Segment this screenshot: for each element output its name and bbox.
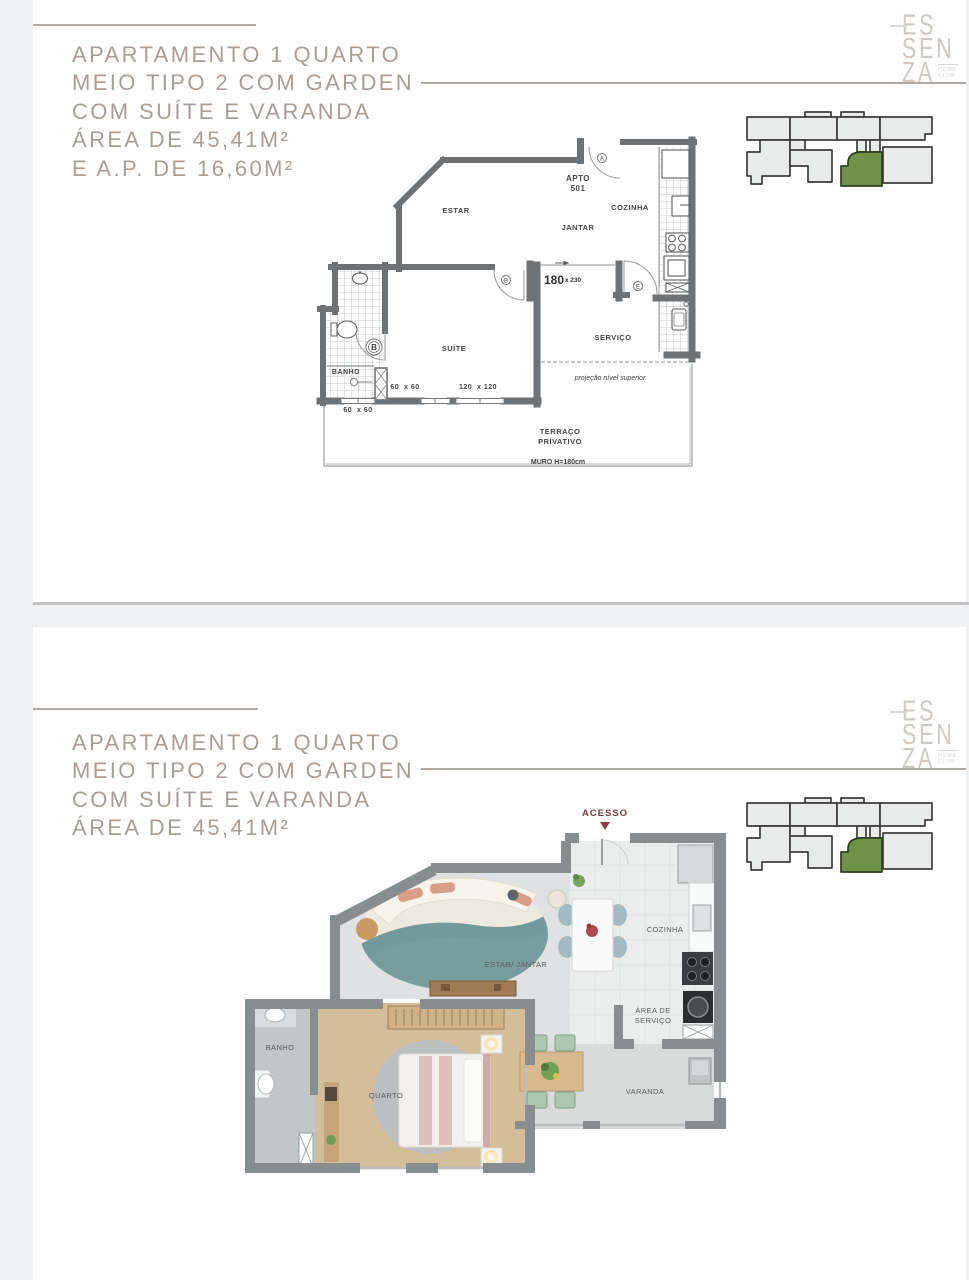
- svg-text:SERVIÇO: SERVIÇO: [635, 1016, 671, 1025]
- svg-text:QUARTO: QUARTO: [369, 1091, 403, 1100]
- svg-text:180: 180: [544, 273, 564, 287]
- svg-text:BANHO: BANHO: [266, 1043, 295, 1052]
- svg-text:E: E: [636, 285, 640, 291]
- svg-text:A: A: [600, 157, 604, 163]
- svg-text:60 x 60: 60 x 60: [343, 407, 372, 414]
- svg-text:BANHO: BANHO: [332, 369, 360, 376]
- svg-text:ESTAR/ JANTAR: ESTAR/ JANTAR: [485, 960, 548, 969]
- svg-text:TERRAÇO: TERRAÇO: [540, 427, 581, 436]
- svg-text:JANTAR: JANTAR: [562, 223, 595, 232]
- svg-text:B: B: [504, 279, 508, 285]
- svg-text:B: B: [371, 343, 377, 352]
- svg-text:SERVIÇO: SERVIÇO: [594, 333, 631, 342]
- svg-text:x 230: x 230: [565, 277, 582, 284]
- svg-text:PRIVATIVO: PRIVATIVO: [538, 437, 582, 446]
- svg-text:MURO H=180cm: MURO H=180cm: [531, 459, 585, 466]
- svg-text:VARANDA: VARANDA: [626, 1087, 665, 1096]
- svg-text:COZINHA: COZINHA: [611, 203, 649, 212]
- svg-text:ÁREA DE: ÁREA DE: [635, 1006, 670, 1015]
- svg-text:projeção nível superior: projeção nível superior: [574, 375, 646, 382]
- svg-text:120 x 120: 120 x 120: [459, 384, 497, 391]
- svg-text:SUÍTE: SUÍTE: [442, 344, 467, 353]
- svg-text:ACESSO: ACESSO: [582, 808, 628, 819]
- svg-text:COZINHA: COZINHA: [647, 925, 684, 934]
- svg-text:APTO: APTO: [566, 174, 590, 183]
- svg-text:501: 501: [571, 184, 586, 193]
- svg-text:60 x 60: 60 x 60: [390, 384, 419, 391]
- svg-text:ESTAR: ESTAR: [442, 206, 469, 215]
